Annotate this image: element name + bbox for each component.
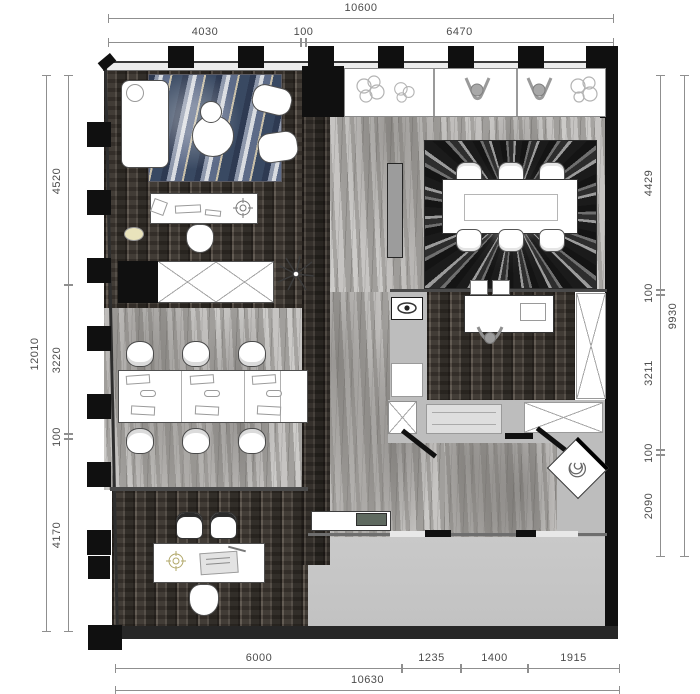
dim-left-seg-4: 4170 [64,438,73,632]
side-table [200,101,222,123]
dim-label: 9930 [667,303,679,329]
wall-right [605,68,618,628]
dim-bottom-overall: 10630 [115,686,620,694]
workstation-paper [257,405,281,415]
door-frame [516,530,536,537]
office-chair [126,428,154,454]
guest-chair [210,512,237,539]
table-divider [244,371,245,422]
column [87,530,111,555]
dim-label: 1915 [558,652,588,664]
interior-column [302,66,344,117]
credenza-x-panel [159,262,216,302]
dim-left-seg-1: 4520 [64,75,73,286]
sofa-cushion [126,84,144,102]
mouse-keyboard [140,390,156,397]
plant-icon [566,72,602,108]
dim-label: 12010 [29,337,41,370]
mouse-keyboard [266,390,282,397]
desk-chair [189,584,219,616]
desk-chair [186,224,214,253]
guest-chair [176,512,203,539]
column [87,122,111,147]
dim-label: 4429 [643,170,655,196]
dim-left-seg-2: 3220 [64,284,73,435]
column [238,46,264,68]
wall-niche-shelf [391,363,423,397]
dim-label: 4170 [51,522,63,548]
mouse-keyboard [204,390,220,397]
column [87,190,111,215]
column [168,46,194,68]
dim-label: 100 [292,26,316,38]
stool [492,280,510,295]
dim-right-seg-5: 2090 [656,454,665,557]
laptop [520,303,546,321]
window-mullion [516,69,518,116]
dim-label: 3211 [643,360,655,386]
dim-right-overall: 9930 [680,75,689,557]
office-chair [238,341,266,367]
wall-bottom [112,626,618,639]
office-chair [182,428,210,454]
column [87,462,111,487]
workstation-paper [195,405,219,415]
person-figure-icon [475,323,505,353]
conference-chair [539,229,565,252]
dim-bottom-seg-2: 1235 [401,664,462,673]
column [378,46,404,68]
plant-icon [390,78,418,106]
person-figure-icon [462,74,492,114]
dim-label: 4520 [51,167,63,193]
floor-plan-canvas: 10600 4030 100 6470 12010 4520 3220 100 … [0,0,700,694]
column [308,46,334,68]
workstation-paper [126,374,151,385]
workstation-paper [252,374,277,385]
dim-label: 1235 [416,652,446,664]
low-bench [426,404,502,434]
conference-table-inlay [464,194,558,221]
table-divider [181,371,182,422]
door-frame [425,530,451,537]
office-chair [182,341,210,367]
column [448,46,474,68]
wall-private-office [110,487,308,491]
column [88,556,110,579]
lamp-icon [396,300,418,316]
dim-label: 10630 [349,674,386,686]
dim-bottom-seg-3: 1400 [460,664,529,673]
credenza-x-panel [216,262,273,302]
hall-bench [387,163,403,258]
workstation-paper [131,405,155,415]
bench-line [432,412,496,413]
dim-label: 6470 [444,26,474,38]
dim-label: 4030 [190,26,220,38]
ceiling-light-icon [166,551,186,571]
wall-segment [505,433,533,439]
dim-label: 100 [643,443,655,463]
dim-label: 10600 [342,2,379,14]
dim-top-overall: 10600 [108,14,614,23]
credenza-dark-section [118,261,158,303]
tall-cabinet [576,293,606,399]
person-figure-icon [524,74,554,114]
corner-column [88,625,122,650]
dim-left-overall: 12010 [42,75,51,632]
window-mullion [433,69,435,116]
table-lamp [124,227,144,241]
floor-lobby [308,537,607,628]
dim-right-seg-1: 4429 [656,75,665,291]
floor-hall-lower [445,433,557,537]
spine-feature-wall [302,85,330,565]
dim-label: 6000 [244,652,274,664]
plant-icon [352,72,388,108]
door-opening [390,531,427,537]
ceiling-light-icon [233,198,253,218]
keyboard [175,204,201,213]
dim-label: 3220 [51,346,63,372]
dim-label: 1400 [479,652,509,664]
bench-line [432,424,496,425]
office-chair [126,341,154,367]
stool [470,280,488,295]
column [87,394,111,419]
workstation-paper [190,374,215,385]
dim-label: 100 [51,427,63,447]
column [87,326,111,351]
door-opening [535,531,578,537]
dim-bottom-seg-1: 6000 [115,664,403,673]
palm-plant-icon [276,254,316,294]
column [518,46,544,68]
column [87,258,111,283]
dim-top-seg-1: 4030 [108,38,302,47]
dim-right-seg-3: 3211 [656,294,665,451]
office-chair [238,428,266,454]
conference-chair [456,229,482,252]
reception-screen [356,513,387,526]
conference-chair [498,229,524,252]
dim-label: 100 [643,283,655,303]
dim-label: 2090 [643,492,655,518]
dim-bottom-seg-4: 1915 [527,664,620,673]
